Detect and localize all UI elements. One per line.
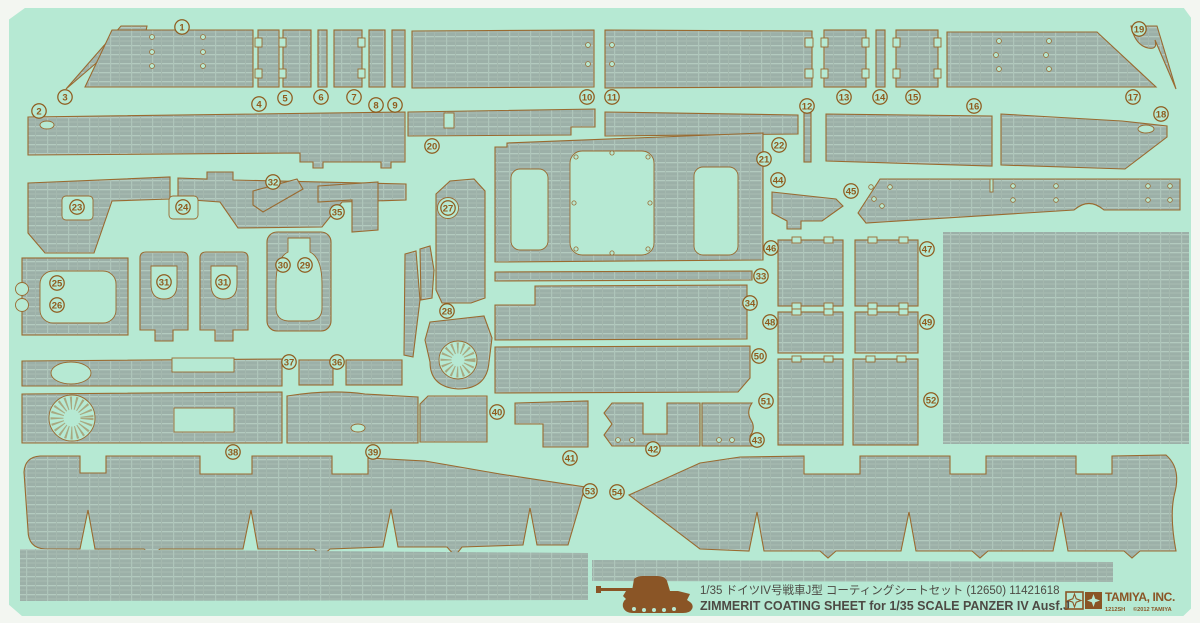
copyright-text: ©2012 TAMIYA (1133, 606, 1172, 613)
part-number-text: 31 (218, 277, 229, 288)
hole (150, 50, 155, 55)
bottom-strip-right (592, 560, 1113, 582)
part-number-text: 24 (178, 202, 189, 213)
sheet-canvas: 1234567891011121314151617181920212223242… (0, 0, 1200, 623)
hole (1054, 198, 1059, 203)
part-shape-46 (778, 240, 843, 306)
part-shape-10 (412, 30, 594, 88)
part-number-text: 15 (908, 92, 919, 103)
notch (279, 38, 286, 47)
part-shape-20 (408, 109, 595, 136)
brand-text: TAMIYA, INC. (1105, 590, 1175, 604)
hatch-cutout (570, 151, 654, 255)
part-shape-11 (605, 30, 812, 88)
part-number-text: 37 (284, 357, 295, 368)
part-shape-48 (778, 312, 843, 353)
notch (792, 303, 801, 309)
hole (444, 113, 454, 128)
part-number-text: 1 (179, 22, 185, 33)
notch (821, 69, 828, 78)
notch (897, 356, 906, 362)
notch (893, 38, 900, 47)
part-shape-40 (420, 396, 487, 442)
hole (717, 438, 722, 443)
part-number-text: 34 (745, 298, 756, 309)
part-number-text: 32 (268, 177, 279, 188)
part-number-text: 31 (159, 277, 170, 288)
scan-margin-bottom (0, 616, 1200, 623)
notch (821, 38, 828, 47)
notch (824, 303, 833, 309)
part-shape-14 (876, 30, 885, 87)
part-number-text: 49 (922, 317, 933, 328)
hole (51, 362, 91, 384)
screw-hole (574, 155, 578, 159)
part-shape-filler-b (420, 246, 434, 300)
sheet-code-text: 1212SH (1105, 607, 1125, 613)
hole (610, 43, 615, 48)
hole (616, 438, 621, 443)
hole (150, 35, 155, 40)
notch (934, 38, 941, 47)
part-shape-49 (855, 312, 918, 353)
part-shape-47 (855, 240, 918, 306)
notch (866, 356, 875, 362)
part-number-text: 13 (839, 92, 850, 103)
part-shape-43 (702, 403, 753, 446)
hole (586, 62, 591, 67)
part-shape-3 (85, 30, 253, 87)
part-number-text: 17 (1128, 92, 1139, 103)
notch (868, 237, 877, 243)
screw-hole (574, 247, 578, 251)
notch (792, 309, 801, 315)
part-shape-22 (605, 112, 798, 136)
part-number-text: 41 (565, 453, 576, 464)
part-shape-8 (369, 30, 385, 87)
hole (201, 35, 206, 40)
tank-wheel (662, 608, 666, 612)
hatch-cutout (511, 169, 548, 250)
tank-wheel (652, 608, 656, 612)
notch (255, 69, 262, 78)
part-number-text: 19 (1134, 24, 1145, 35)
part-number-text: 8 (373, 100, 378, 111)
screw-hole (610, 251, 614, 255)
part-number-text: 11 (607, 92, 618, 103)
part-number-text: 29 (300, 260, 311, 271)
tank-wheel (672, 607, 676, 611)
screw-hole (610, 151, 614, 155)
notch (16, 299, 29, 312)
part-number-text: 46 (766, 243, 777, 254)
notch (792, 237, 801, 243)
notch (893, 69, 900, 78)
hole (994, 53, 999, 58)
part-number-text: 39 (368, 447, 379, 458)
notch (358, 38, 365, 47)
hole (880, 204, 885, 209)
hole (997, 39, 1002, 44)
part-number-text: 38 (228, 447, 239, 458)
part-number-text: 12 (802, 101, 813, 112)
notch (990, 179, 993, 192)
part-number-text: 23 (72, 202, 83, 213)
part-number-text: 4 (256, 99, 262, 110)
notch (934, 69, 941, 78)
part-number-text: 43 (752, 435, 763, 446)
part-number-text: 21 (759, 154, 770, 165)
part-number-text: 3 (62, 92, 67, 103)
hole (1044, 53, 1049, 58)
hole (872, 197, 877, 202)
part-number-text: 26 (52, 300, 63, 311)
screw-hole (572, 201, 576, 205)
notch (172, 358, 234, 372)
part-shape-33 (495, 271, 752, 281)
hole (150, 64, 155, 69)
hole (586, 43, 591, 48)
spare-zimmerit-sheet (943, 232, 1189, 444)
part-number-text: 10 (582, 92, 593, 103)
hole (997, 67, 1002, 72)
hole (201, 50, 206, 55)
part-shape-51 (778, 359, 843, 445)
hole (1011, 198, 1016, 203)
hole (351, 424, 365, 432)
notch (358, 69, 365, 78)
hole (1047, 67, 1052, 72)
hole (1146, 198, 1151, 203)
hole (1047, 39, 1052, 44)
part-number-text: 14 (875, 92, 886, 103)
part-number-text: 52 (926, 395, 937, 406)
part-shape-39 (287, 392, 418, 443)
notch (16, 283, 29, 296)
footer-title-english: ZIMMERIT COATING SHEET for 1/35 SCALE PA… (700, 599, 1070, 613)
notch (174, 408, 234, 432)
part-number-text: 22 (774, 140, 785, 151)
part-number-text: 33 (756, 271, 767, 282)
part-shape-36b (346, 360, 402, 385)
part-number-text: 40 (492, 407, 503, 418)
part-shape-12 (804, 113, 811, 162)
notch (899, 303, 908, 309)
part-number-text: 54 (612, 487, 623, 498)
hole (630, 438, 635, 443)
notch (862, 69, 869, 78)
part-number-text: 36 (332, 357, 343, 368)
part-shape-6 (318, 30, 327, 87)
hole (888, 185, 893, 190)
part-number-text: 48 (765, 317, 776, 328)
part-shape-50 (495, 346, 750, 393)
part-number-text: 25 (52, 278, 63, 289)
hole (201, 64, 206, 69)
notch (279, 69, 286, 78)
part-number-text: 5 (282, 93, 288, 104)
notch (824, 309, 833, 315)
screw-hole (646, 155, 650, 159)
tamiya-logo: TAMIYA, INC. 1212SH ©2012 TAMIYA (1066, 590, 1175, 613)
bottom-strip-left (20, 549, 588, 601)
part-shape-9 (392, 30, 405, 87)
notch (868, 309, 877, 315)
part-number-text: 53 (585, 486, 596, 497)
part-number-text: 35 (332, 207, 343, 218)
part-number-text: 51 (761, 396, 772, 407)
scan-margin-top (0, 0, 1200, 8)
part-number-text: 27 (443, 203, 454, 214)
part-number-text: 7 (351, 92, 356, 103)
part-shape-5 (283, 30, 311, 87)
part-number-text: 20 (427, 141, 438, 152)
notch (792, 356, 801, 362)
part-shape-16 (826, 114, 992, 166)
tank-wheel (632, 607, 636, 611)
hole (1168, 184, 1173, 189)
part-number-text: 50 (754, 351, 765, 362)
hatch-cutout (694, 167, 738, 255)
part-number-text: 30 (278, 260, 289, 271)
notch (899, 309, 908, 315)
notch (824, 237, 833, 243)
scan-margin-right (1191, 0, 1200, 623)
notch (862, 38, 869, 47)
hole (1168, 198, 1173, 203)
part-shape-13 (824, 30, 866, 87)
part-number-text: 45 (846, 186, 857, 197)
part-number-text: 9 (392, 100, 397, 111)
part-number-text: 47 (922, 244, 933, 255)
notch (805, 38, 813, 47)
scan-margin-left (0, 0, 9, 623)
part-shape-36a (299, 360, 333, 385)
notch (255, 38, 262, 47)
hole (1011, 184, 1016, 189)
screw-hole (646, 247, 650, 251)
screw-hole (648, 201, 652, 205)
part-shape-52 (853, 359, 918, 445)
part-number-text: 6 (318, 92, 323, 103)
footer-title-japanese: 1/35 ドイツIV号戦車J型 コーティングシートセット (12650) 114… (700, 583, 1060, 597)
part-number-text: 16 (969, 101, 980, 112)
notch (805, 69, 813, 78)
hole (869, 185, 874, 190)
part-number-text: 2 (36, 106, 41, 117)
notch (899, 237, 908, 243)
part-number-text: 28 (442, 306, 453, 317)
notch (824, 356, 833, 362)
part-shape-27 (436, 179, 485, 303)
hole (1138, 125, 1154, 133)
part-shape-15 (896, 30, 938, 87)
hole (1146, 184, 1151, 189)
part-number-text: 18 (1156, 109, 1167, 120)
part-number-text: 42 (648, 444, 659, 455)
part-number-text: 44 (773, 175, 784, 186)
tank-wheel (642, 608, 646, 612)
hole (730, 438, 735, 443)
hole (40, 121, 54, 129)
zimmerit-sheet-scan: 1234567891011121314151617181920212223242… (0, 0, 1200, 623)
hole (1054, 184, 1059, 189)
hole (610, 62, 615, 67)
notch (868, 303, 877, 309)
